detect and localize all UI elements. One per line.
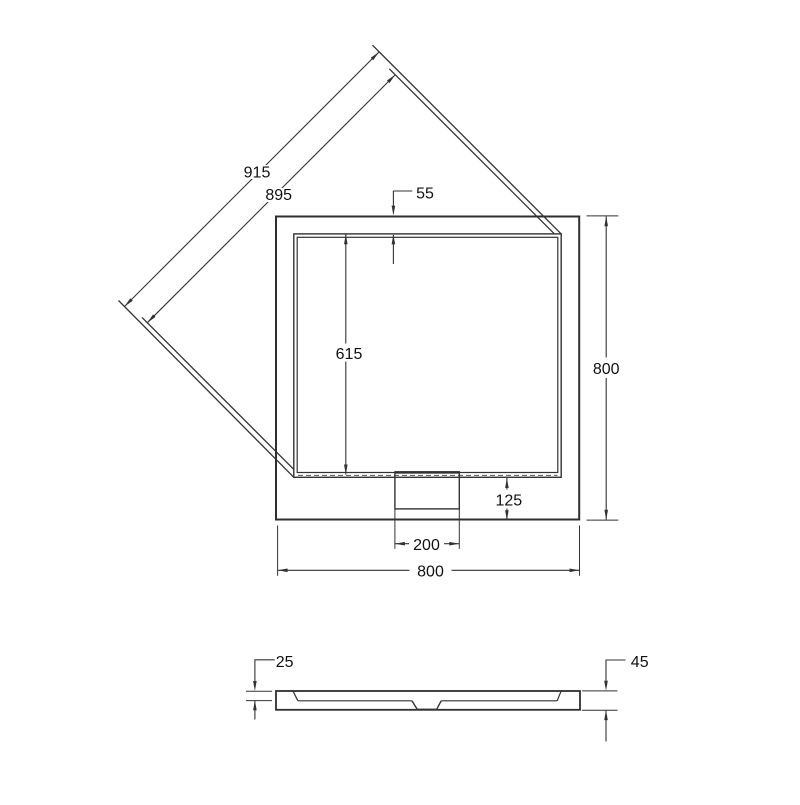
svg-text:55: 55 [416, 185, 434, 202]
svg-text:615: 615 [336, 346, 363, 363]
svg-text:895: 895 [265, 187, 292, 204]
svg-text:200: 200 [413, 537, 440, 554]
svg-text:45: 45 [631, 654, 649, 671]
svg-text:915: 915 [244, 165, 271, 182]
svg-text:800: 800 [593, 361, 620, 378]
svg-text:25: 25 [276, 654, 294, 671]
svg-text:125: 125 [495, 493, 522, 510]
svg-text:800: 800 [417, 564, 444, 581]
